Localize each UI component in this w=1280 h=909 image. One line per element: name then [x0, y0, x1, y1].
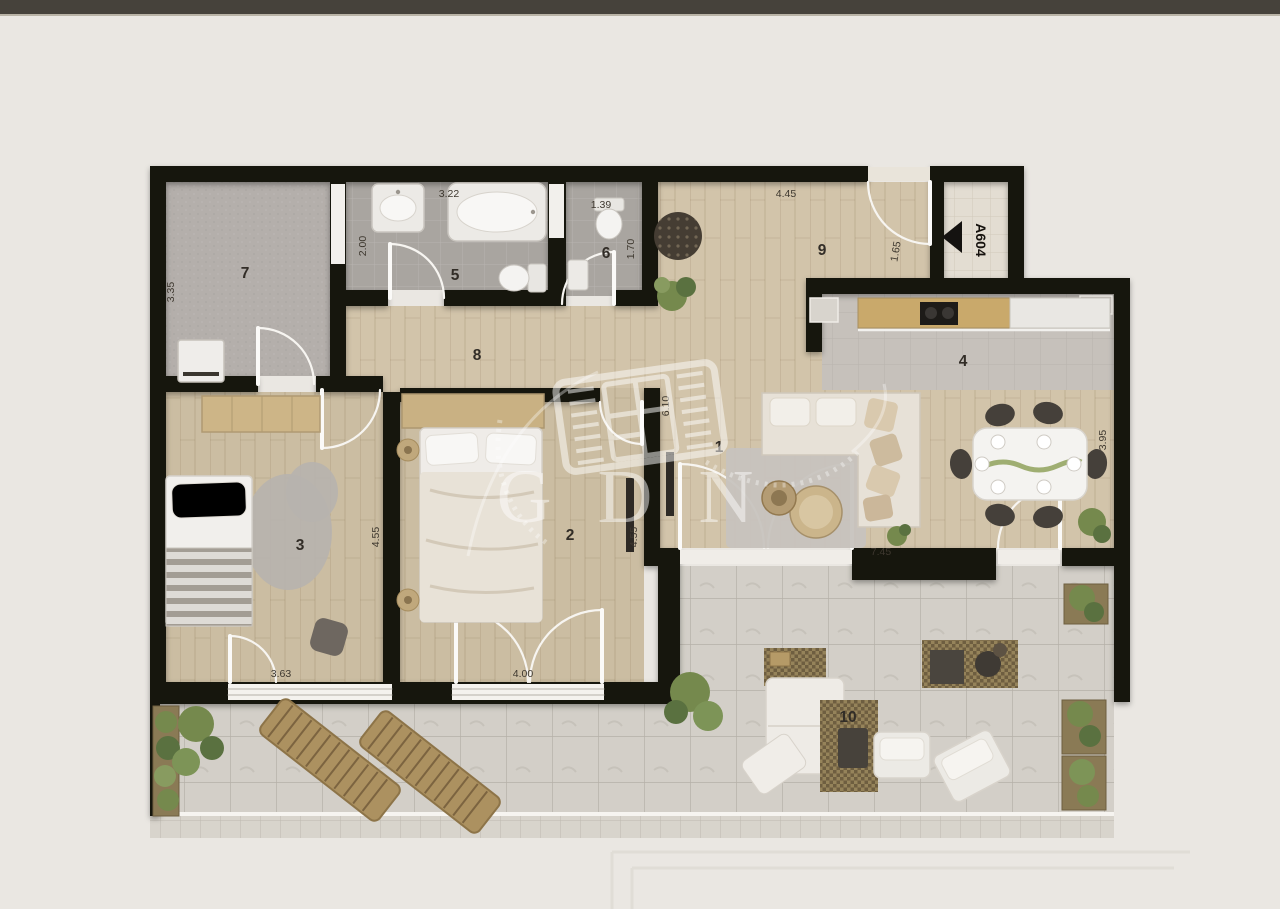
room-label-kitchen: 4 [959, 353, 968, 370]
balcony-threshold [680, 550, 852, 564]
wardrobe [202, 396, 320, 432]
headboard-wardrobe [402, 394, 544, 428]
room-label-wc: 6 [602, 245, 611, 262]
unit-number: A604 [973, 223, 989, 257]
dim-bedroom3-window: 3.63 [271, 668, 292, 680]
floor-plan-page: 1 2 3 4 5 6 7 8 9 10 3.22 2.00 1.39 1.70… [0, 0, 1280, 909]
counter-white [1010, 298, 1110, 328]
room-label-bathroom: 5 [451, 267, 460, 284]
kitchen-furniture [858, 298, 1110, 330]
room-label-terrace: 10 [839, 709, 856, 726]
dim-bedroom2-window: 4.00 [513, 668, 534, 680]
dim-bath-depth: 2.00 [357, 236, 369, 257]
outdoor-table [930, 650, 964, 684]
dim-bedroom3-depth: 4.55 [370, 527, 382, 548]
terrace-edge-line [150, 812, 1114, 816]
coffee-table [838, 728, 868, 768]
outdoor-desk-set [922, 640, 1018, 688]
small-sink [568, 260, 588, 290]
room-label-bedroom3: 3 [296, 537, 305, 554]
room-label-hallway: 8 [473, 347, 482, 364]
entry-threshold [868, 167, 930, 181]
dim-room7-depth: 3.35 [165, 282, 177, 303]
bedroom2-window [452, 684, 604, 700]
bottom-frame-lines [612, 852, 1190, 909]
room7-furniture [178, 340, 224, 382]
dim-dining-depth: 3.95 [1097, 430, 1109, 451]
room-label-entry: 9 [818, 242, 827, 259]
bedroom3-window [228, 684, 392, 700]
room-label-room7: 7 [241, 265, 250, 282]
watermark-text: GDN [497, 455, 800, 539]
dining-threshold [998, 550, 1060, 564]
toilet [499, 264, 546, 292]
dim-wc-width: 1.39 [591, 199, 612, 211]
dim-wc-depth: 1.70 [625, 239, 637, 260]
dim-entry-width: 4.45 [776, 188, 797, 200]
floor-plan: 1 2 3 4 5 6 7 8 9 10 3.22 2.00 1.39 1.70… [0, 0, 1280, 909]
dim-living-width: 7.45 [871, 546, 892, 558]
single-bed [166, 476, 252, 626]
dim-bath-width: 3.22 [439, 188, 460, 200]
